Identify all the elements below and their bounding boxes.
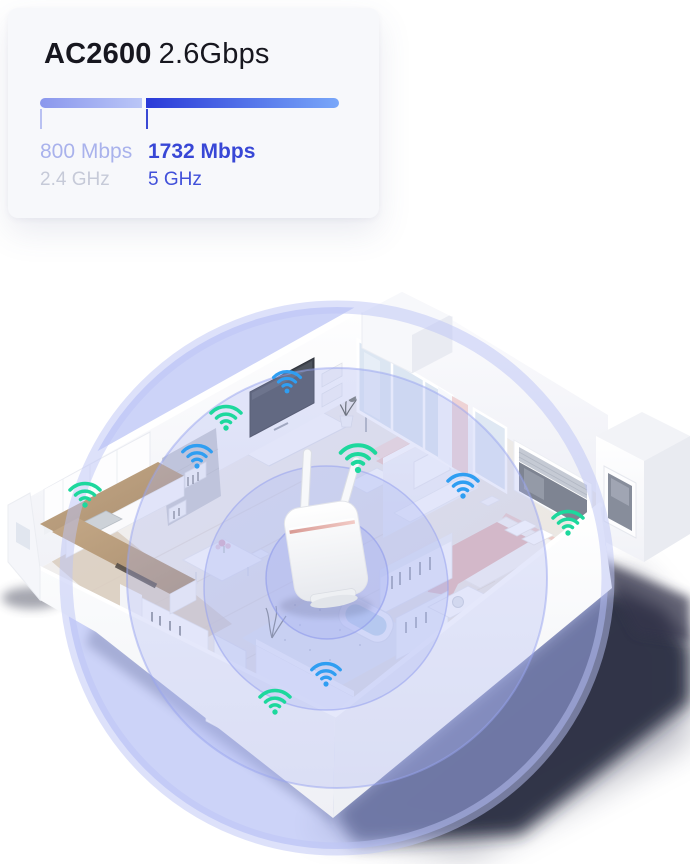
product-model: AC2600 xyxy=(44,38,152,70)
bandwidth-segment-2-4ghz xyxy=(40,98,142,108)
band-5ghz-freq: 5 GHz xyxy=(148,169,255,191)
product-speed: 2.6Gbps xyxy=(159,38,270,70)
band-2-4ghz: 800 Mbps 2.4 GHz xyxy=(40,140,148,191)
product-title: AC26002.6Gbps xyxy=(44,38,270,71)
tick-5ghz xyxy=(146,109,148,129)
page: AC26002.6Gbps 800 Mbps 2.4 GHz 1732 Mbps… xyxy=(0,0,690,864)
band-2-4ghz-speed: 800 Mbps xyxy=(40,140,148,164)
band-2-4ghz-freq: 2.4 GHz xyxy=(40,169,148,191)
band-5ghz-speed: 1732 Mbps xyxy=(148,140,255,164)
band-labels: 800 Mbps 2.4 GHz 1732 Mbps 5 GHz xyxy=(40,140,255,191)
tick-2-4ghz xyxy=(40,109,42,129)
bandwidth-bar xyxy=(40,98,339,108)
bandwidth-segment-5ghz xyxy=(146,98,339,108)
band-5ghz: 1732 Mbps 5 GHz xyxy=(148,140,255,191)
spec-card: AC26002.6Gbps 800 Mbps 2.4 GHz 1732 Mbps… xyxy=(8,8,379,218)
